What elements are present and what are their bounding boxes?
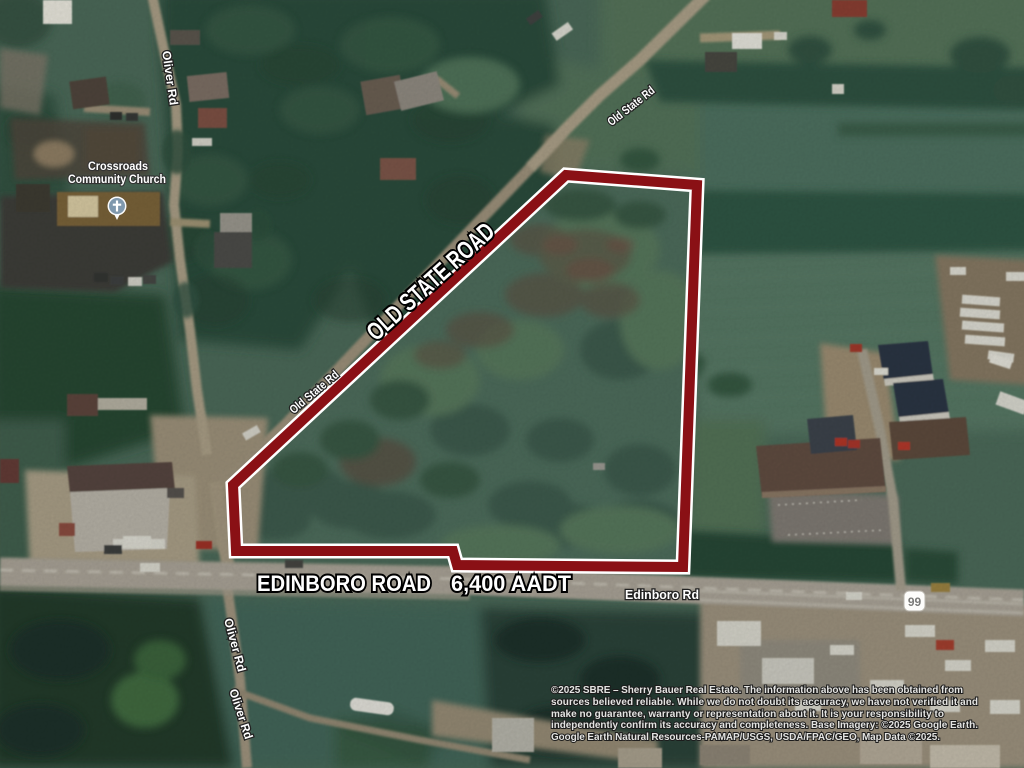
svg-text:sources believed reliable. Whi: sources believed reliable. While we do n… xyxy=(551,697,978,708)
svg-text:6,400 AADT: 6,400 AADT xyxy=(451,571,572,596)
svg-text:Community Church: Community Church xyxy=(68,174,166,186)
svg-text:EDINBORO ROAD: EDINBORO ROAD xyxy=(257,571,431,596)
svg-text:©2025 SBRE – Sherry Bauer Real: ©2025 SBRE – Sherry Bauer Real Estate. T… xyxy=(551,685,963,696)
svg-text:make no guarantee, warranty or: make no guarantee, warranty or represent… xyxy=(551,709,944,720)
svg-text:independently confirm its accu: independently confirm its accuracy and c… xyxy=(551,720,978,731)
svg-text:99: 99 xyxy=(908,595,922,609)
svg-text:Crossroads: Crossroads xyxy=(88,161,148,173)
svg-text:Edinboro Rd: Edinboro Rd xyxy=(625,588,699,602)
svg-text:Google Earth Natural Resources: Google Earth Natural Resources-PAMAP/USG… xyxy=(551,732,940,743)
